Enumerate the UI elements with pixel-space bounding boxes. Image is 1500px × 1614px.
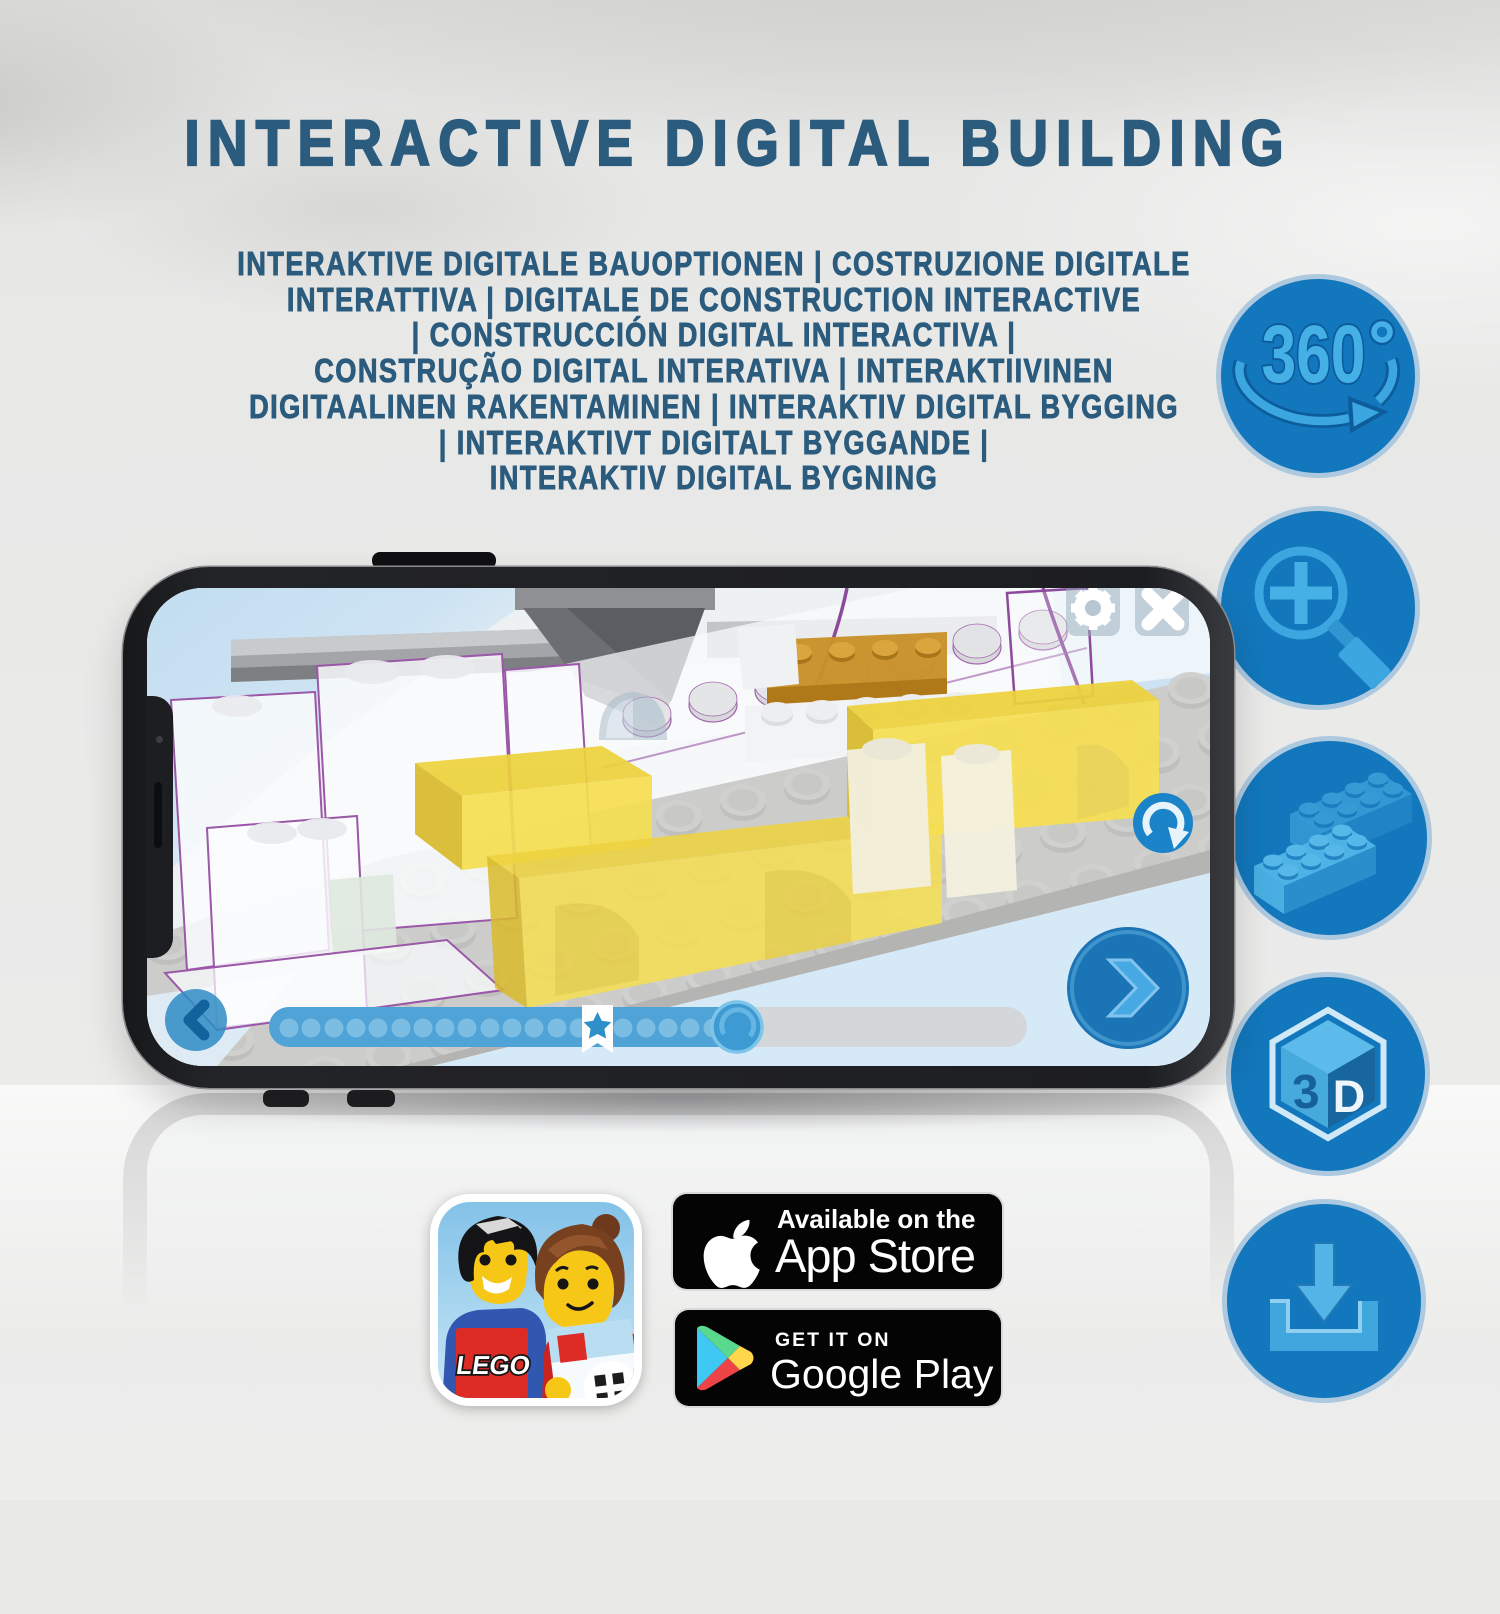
- svg-text:App Store: App Store: [775, 1229, 975, 1282]
- svg-text:3: 3: [1291, 1065, 1321, 1120]
- svg-text:360: 360: [1261, 309, 1365, 400]
- svg-text:Google Play: Google Play: [770, 1351, 994, 1397]
- svg-text:D: D: [1333, 1071, 1366, 1122]
- svg-text:GET IT ON: GET IT ON: [775, 1329, 891, 1351]
- svg-text:LEGO: LEGO: [454, 1350, 532, 1380]
